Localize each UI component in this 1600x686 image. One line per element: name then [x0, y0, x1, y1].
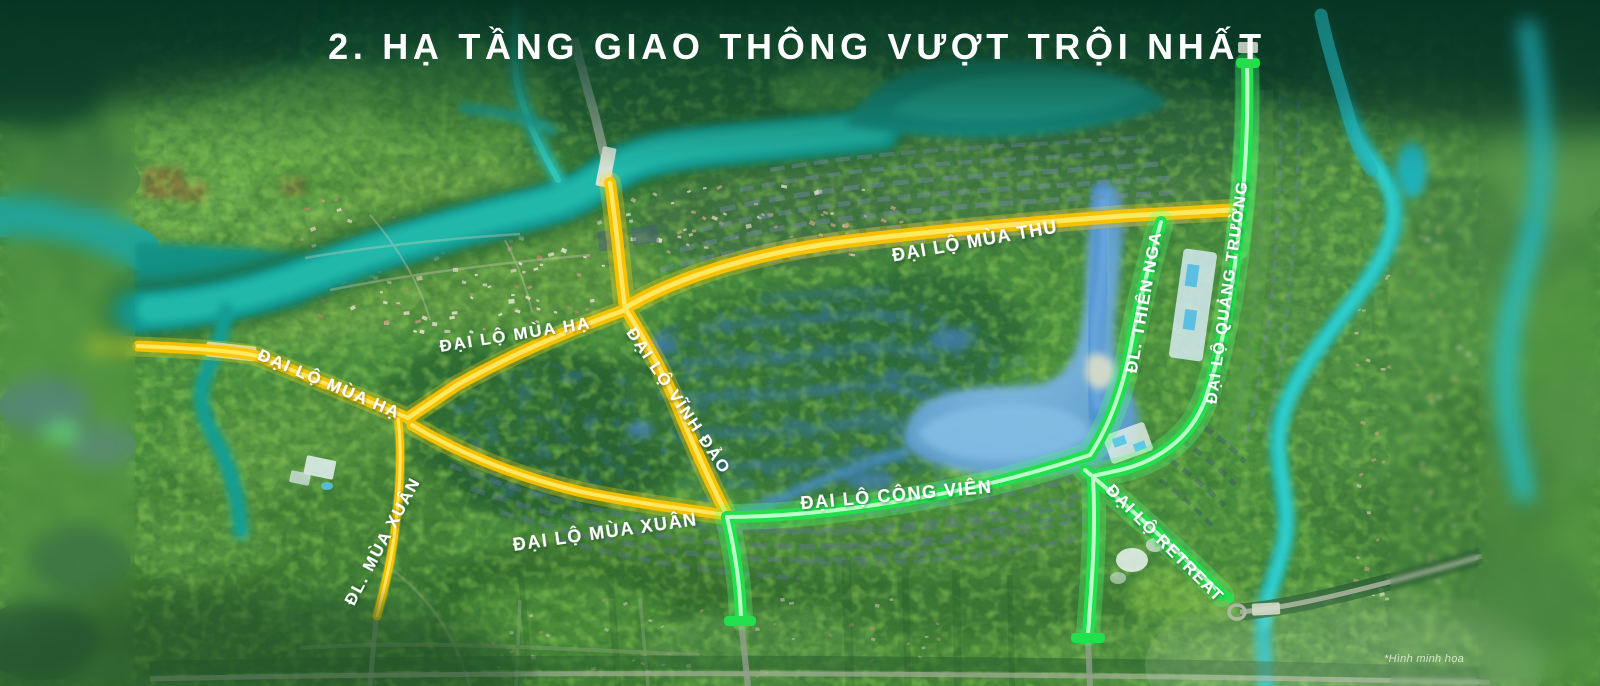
svg-text:2. HẠ TẦNG GIAO THÔNG VƯỢT TRỘ: 2. HẠ TẦNG GIAO THÔNG VƯỢT TRỘI NHẤT: [328, 25, 1266, 67]
